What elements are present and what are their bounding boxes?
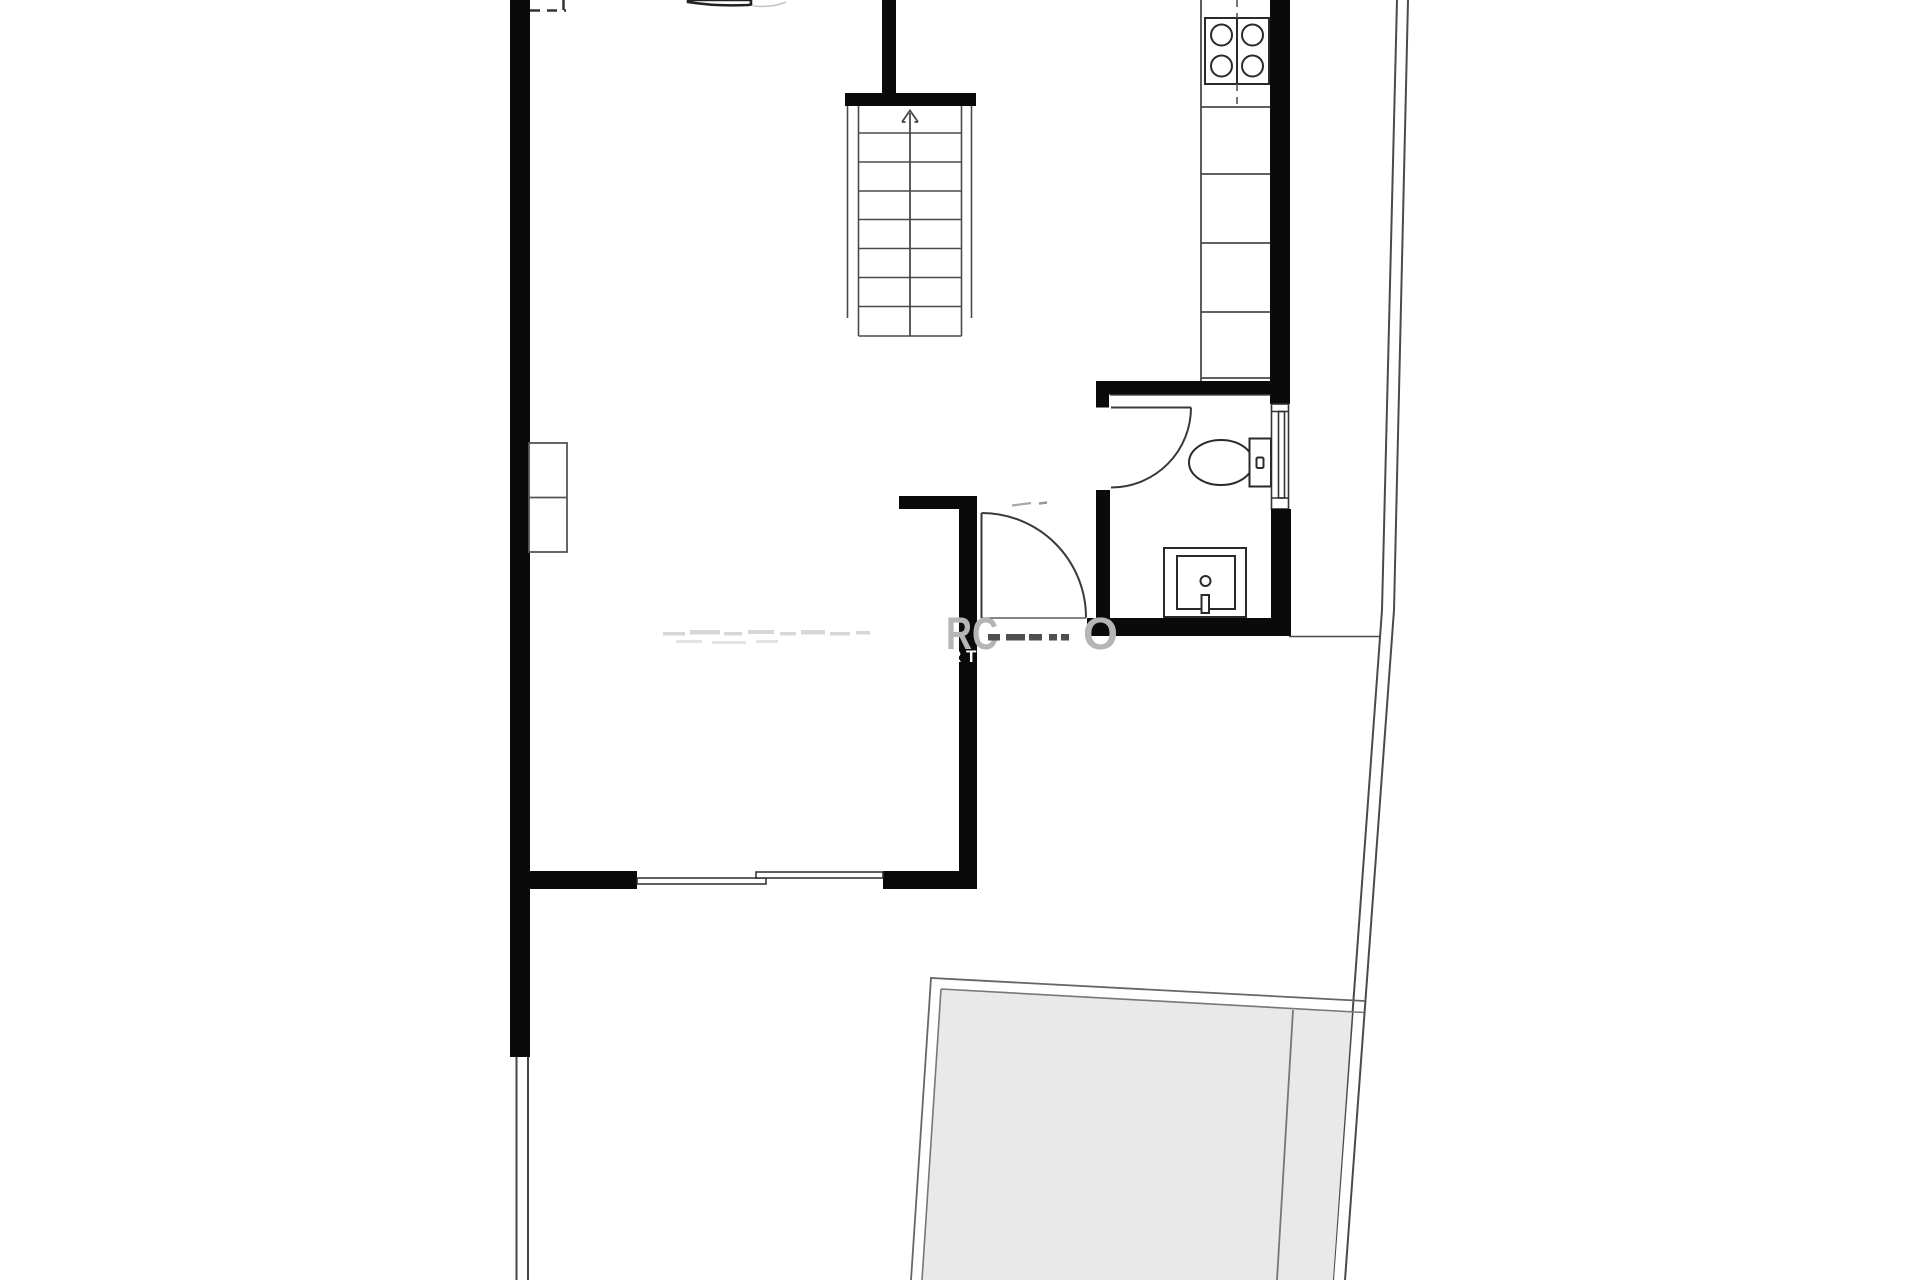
svg-text:O: O bbox=[1083, 608, 1118, 659]
svg-text:T: T bbox=[966, 647, 977, 666]
svg-text:R: R bbox=[949, 647, 961, 666]
